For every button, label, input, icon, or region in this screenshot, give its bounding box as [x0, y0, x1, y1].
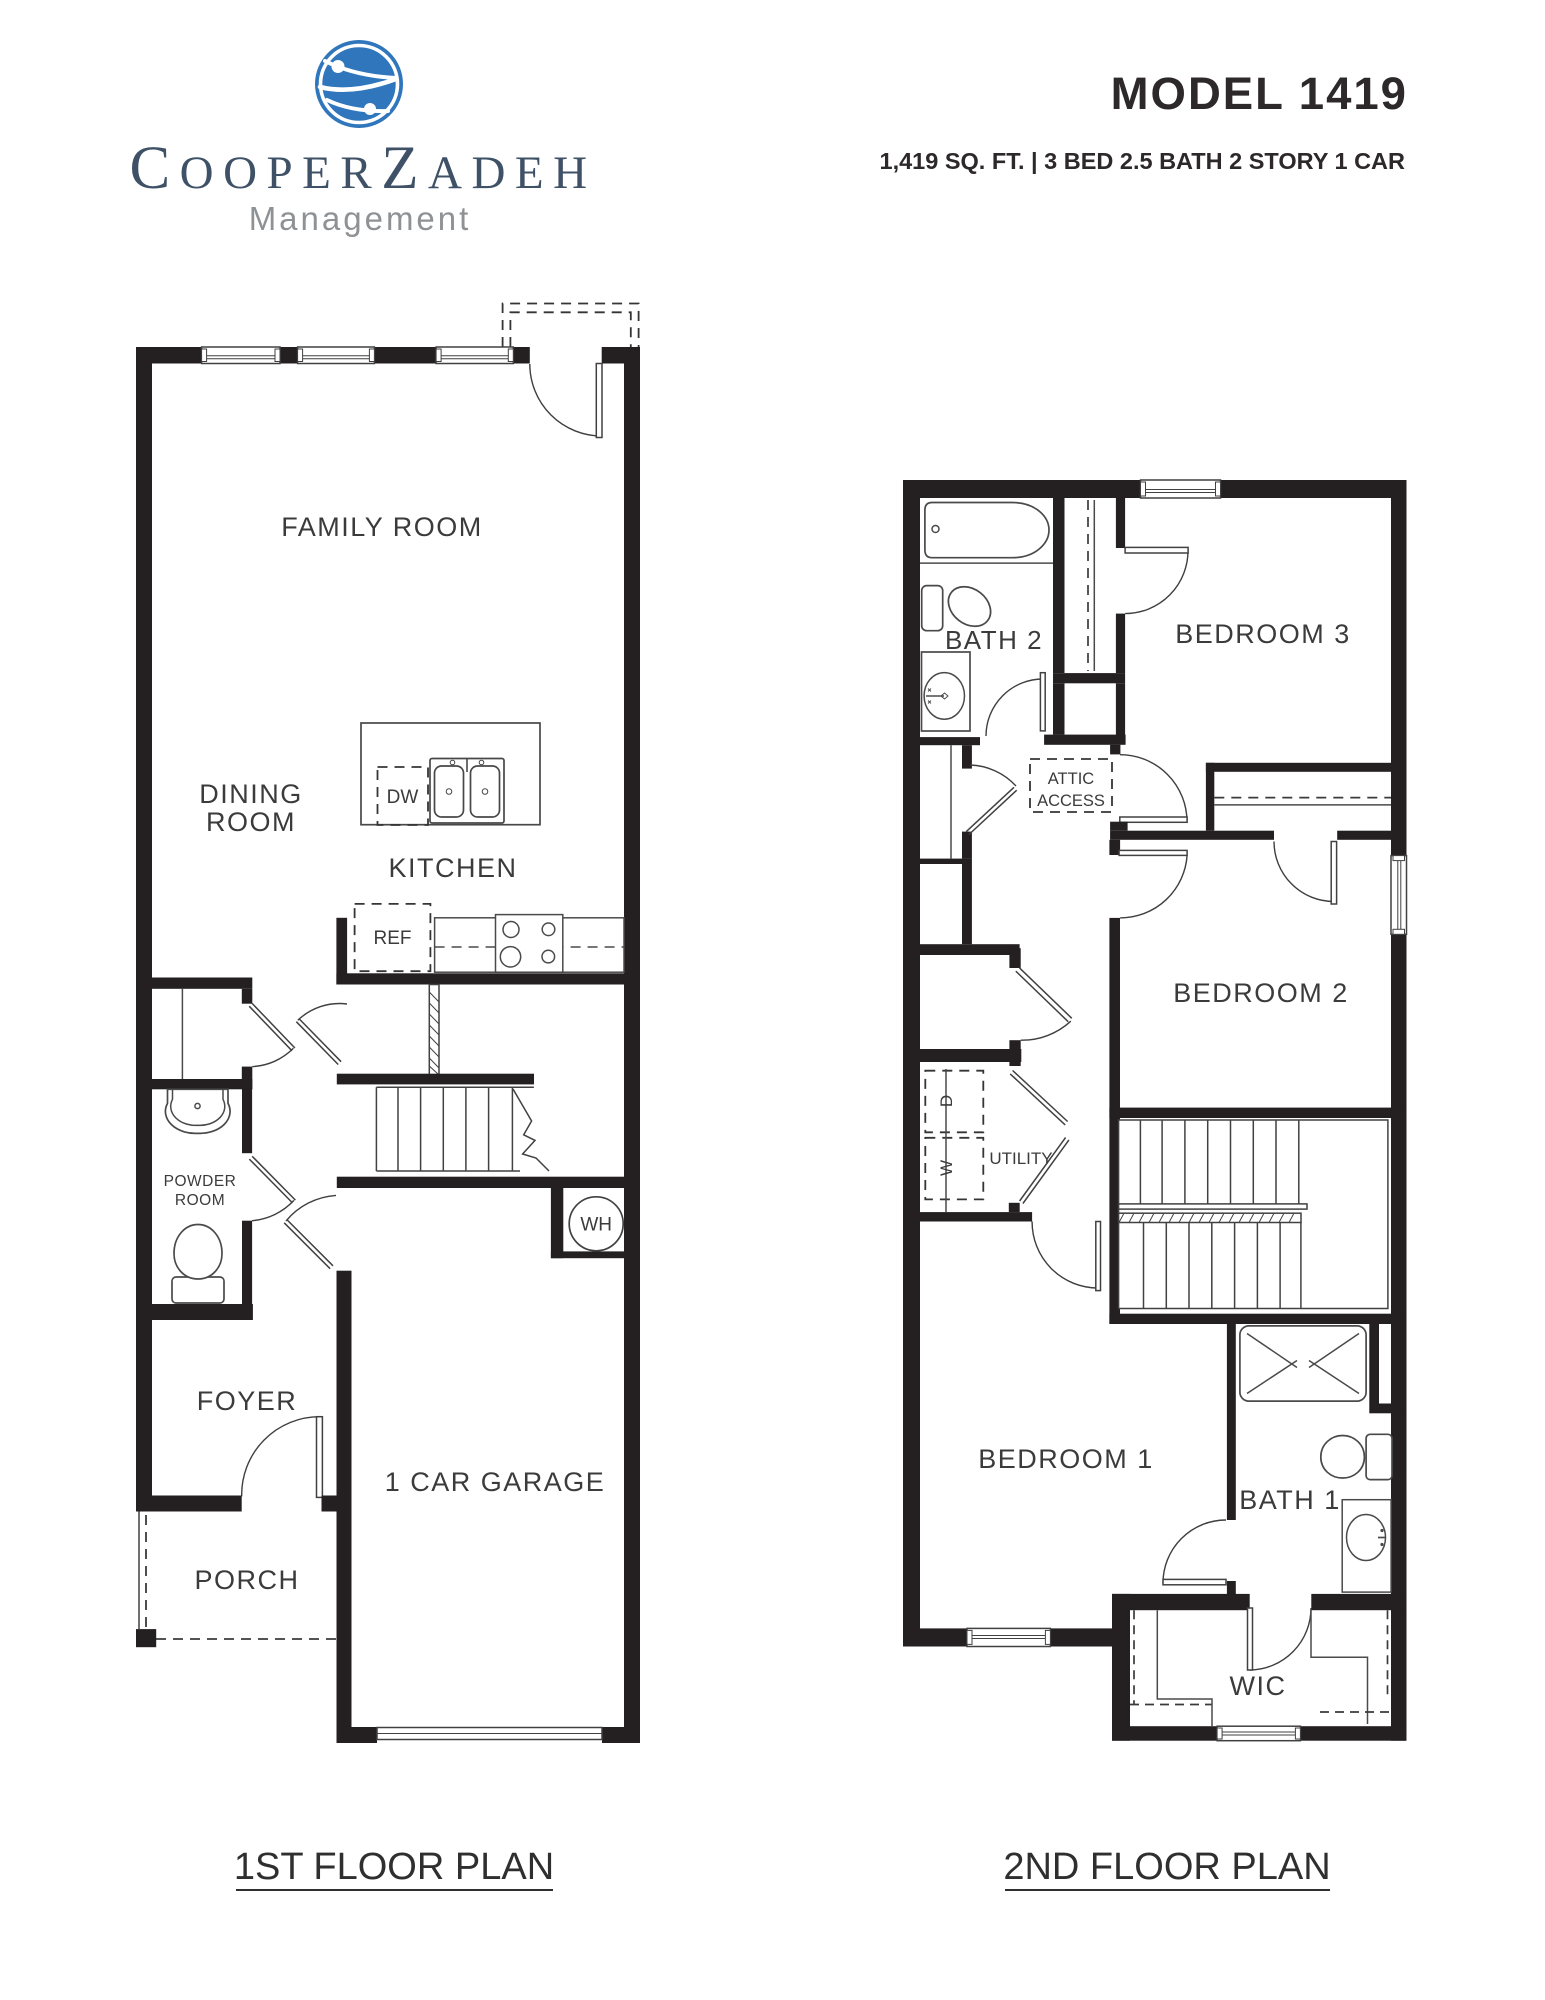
- svg-text:POWDER: POWDER: [164, 1173, 237, 1190]
- svg-text:2ND FLOOR PLAN: 2ND FLOOR PLAN: [1003, 1846, 1330, 1888]
- svg-text:BATH 2: BATH 2: [945, 625, 1043, 655]
- svg-text:BEDROOM 2: BEDROOM 2: [1173, 978, 1349, 1008]
- svg-text:DW: DW: [387, 787, 419, 808]
- svg-text:PORCH: PORCH: [194, 1565, 299, 1595]
- svg-text:Management: Management: [249, 200, 472, 237]
- svg-text:DINING: DINING: [199, 779, 303, 809]
- svg-text:W: W: [937, 1160, 956, 1176]
- svg-text:1ST FLOOR PLAN: 1ST FLOOR PLAN: [234, 1846, 554, 1888]
- svg-text:1,419 SQ. FT. | 3 BED 2.5 BATH: 1,419 SQ. FT. | 3 BED 2.5 BATH 2 STORY 1…: [880, 148, 1406, 174]
- svg-text:BEDROOM 3: BEDROOM 3: [1175, 619, 1351, 649]
- svg-text:KITCHEN: KITCHEN: [388, 853, 517, 883]
- svg-text:WH: WH: [580, 1215, 612, 1236]
- svg-text:ROOM: ROOM: [206, 807, 296, 837]
- svg-text:FAMILY ROOM: FAMILY ROOM: [281, 512, 483, 542]
- svg-text:ROOM: ROOM: [175, 1192, 225, 1209]
- svg-text:FOYER: FOYER: [197, 1386, 298, 1416]
- svg-text:BEDROOM 1: BEDROOM 1: [978, 1444, 1154, 1474]
- svg-text:WIC: WIC: [1230, 1671, 1287, 1701]
- svg-text:MODEL 1419: MODEL 1419: [1111, 68, 1408, 119]
- svg-text:D: D: [937, 1095, 956, 1107]
- svg-text:1 CAR GARAGE: 1 CAR GARAGE: [385, 1467, 606, 1497]
- svg-text:REF: REF: [374, 928, 412, 949]
- svg-text:ACCESS: ACCESS: [1037, 792, 1105, 810]
- svg-text:UTILITY: UTILITY: [989, 1149, 1052, 1168]
- svg-text:BATH 1: BATH 1: [1239, 1485, 1341, 1515]
- svg-text:ATTIC: ATTIC: [1048, 770, 1095, 788]
